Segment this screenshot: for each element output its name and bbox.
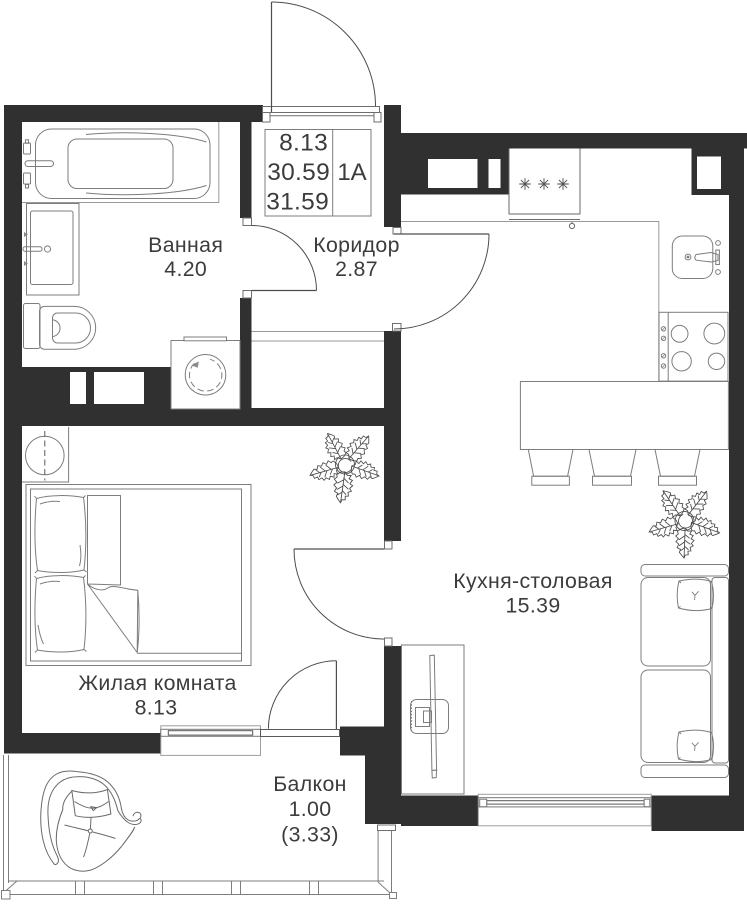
- svg-text:Коридор: Коридор: [313, 233, 400, 257]
- svg-text:1.00: 1.00: [289, 797, 332, 821]
- svg-text:1А: 1А: [337, 159, 366, 186]
- svg-text:8.13: 8.13: [279, 130, 328, 157]
- svg-text:Балкон: Балкон: [273, 772, 347, 796]
- svg-text:(3.33): (3.33): [281, 823, 339, 847]
- svg-text:Кухня-столовая: Кухня-столовая: [453, 569, 613, 593]
- svg-text:31.59: 31.59: [266, 189, 329, 216]
- svg-text:30.59: 30.59: [267, 159, 330, 186]
- svg-text:Жилая комната: Жилая комната: [78, 671, 236, 695]
- svg-text:15.39: 15.39: [505, 594, 560, 618]
- svg-text:Ванная: Ванная: [148, 233, 223, 257]
- svg-text:2.87: 2.87: [335, 257, 378, 281]
- svg-text:4.20: 4.20: [164, 257, 207, 281]
- svg-text:8.13: 8.13: [135, 696, 178, 720]
